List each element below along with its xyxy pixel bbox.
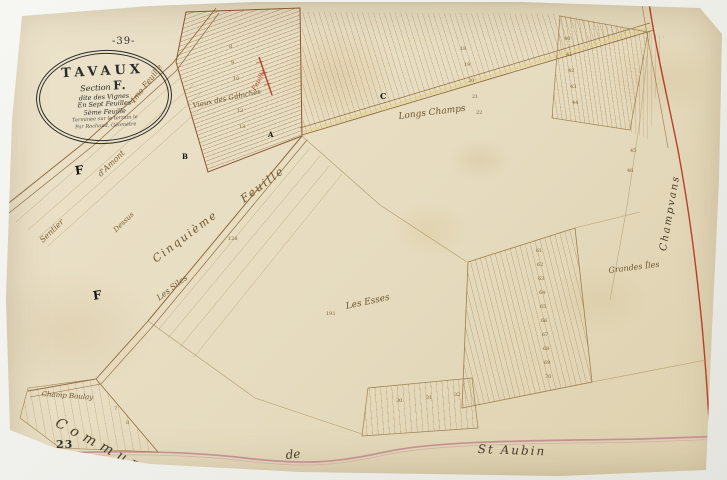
map-title: TAVAUX xyxy=(61,63,144,82)
sheet-number-top: -39- xyxy=(112,36,135,47)
section-word: Section xyxy=(80,83,111,94)
map-section-line: Section F. xyxy=(80,79,127,95)
section-letter: F. xyxy=(113,78,127,93)
cartouche-sheet-line: 5ème Feuille xyxy=(83,108,126,118)
cartouche-note-line1: Terminée sur le terrain le xyxy=(72,115,138,124)
cadastral-map-scan: TAVAUX Section F. dite des Vignes En Sep… xyxy=(0,0,727,480)
sheet-number-bottom: 23 xyxy=(56,438,73,451)
cartouche-dite-line: dite des Vignes xyxy=(79,93,130,103)
cartouche-feuilles-line: En Sept Feuilles xyxy=(77,100,131,110)
map-paper-sheet: TAVAUX Section F. dite des Vignes En Sep… xyxy=(0,0,727,480)
cartouche-note-line2: Par Rochaud, Géomètre xyxy=(75,121,136,130)
